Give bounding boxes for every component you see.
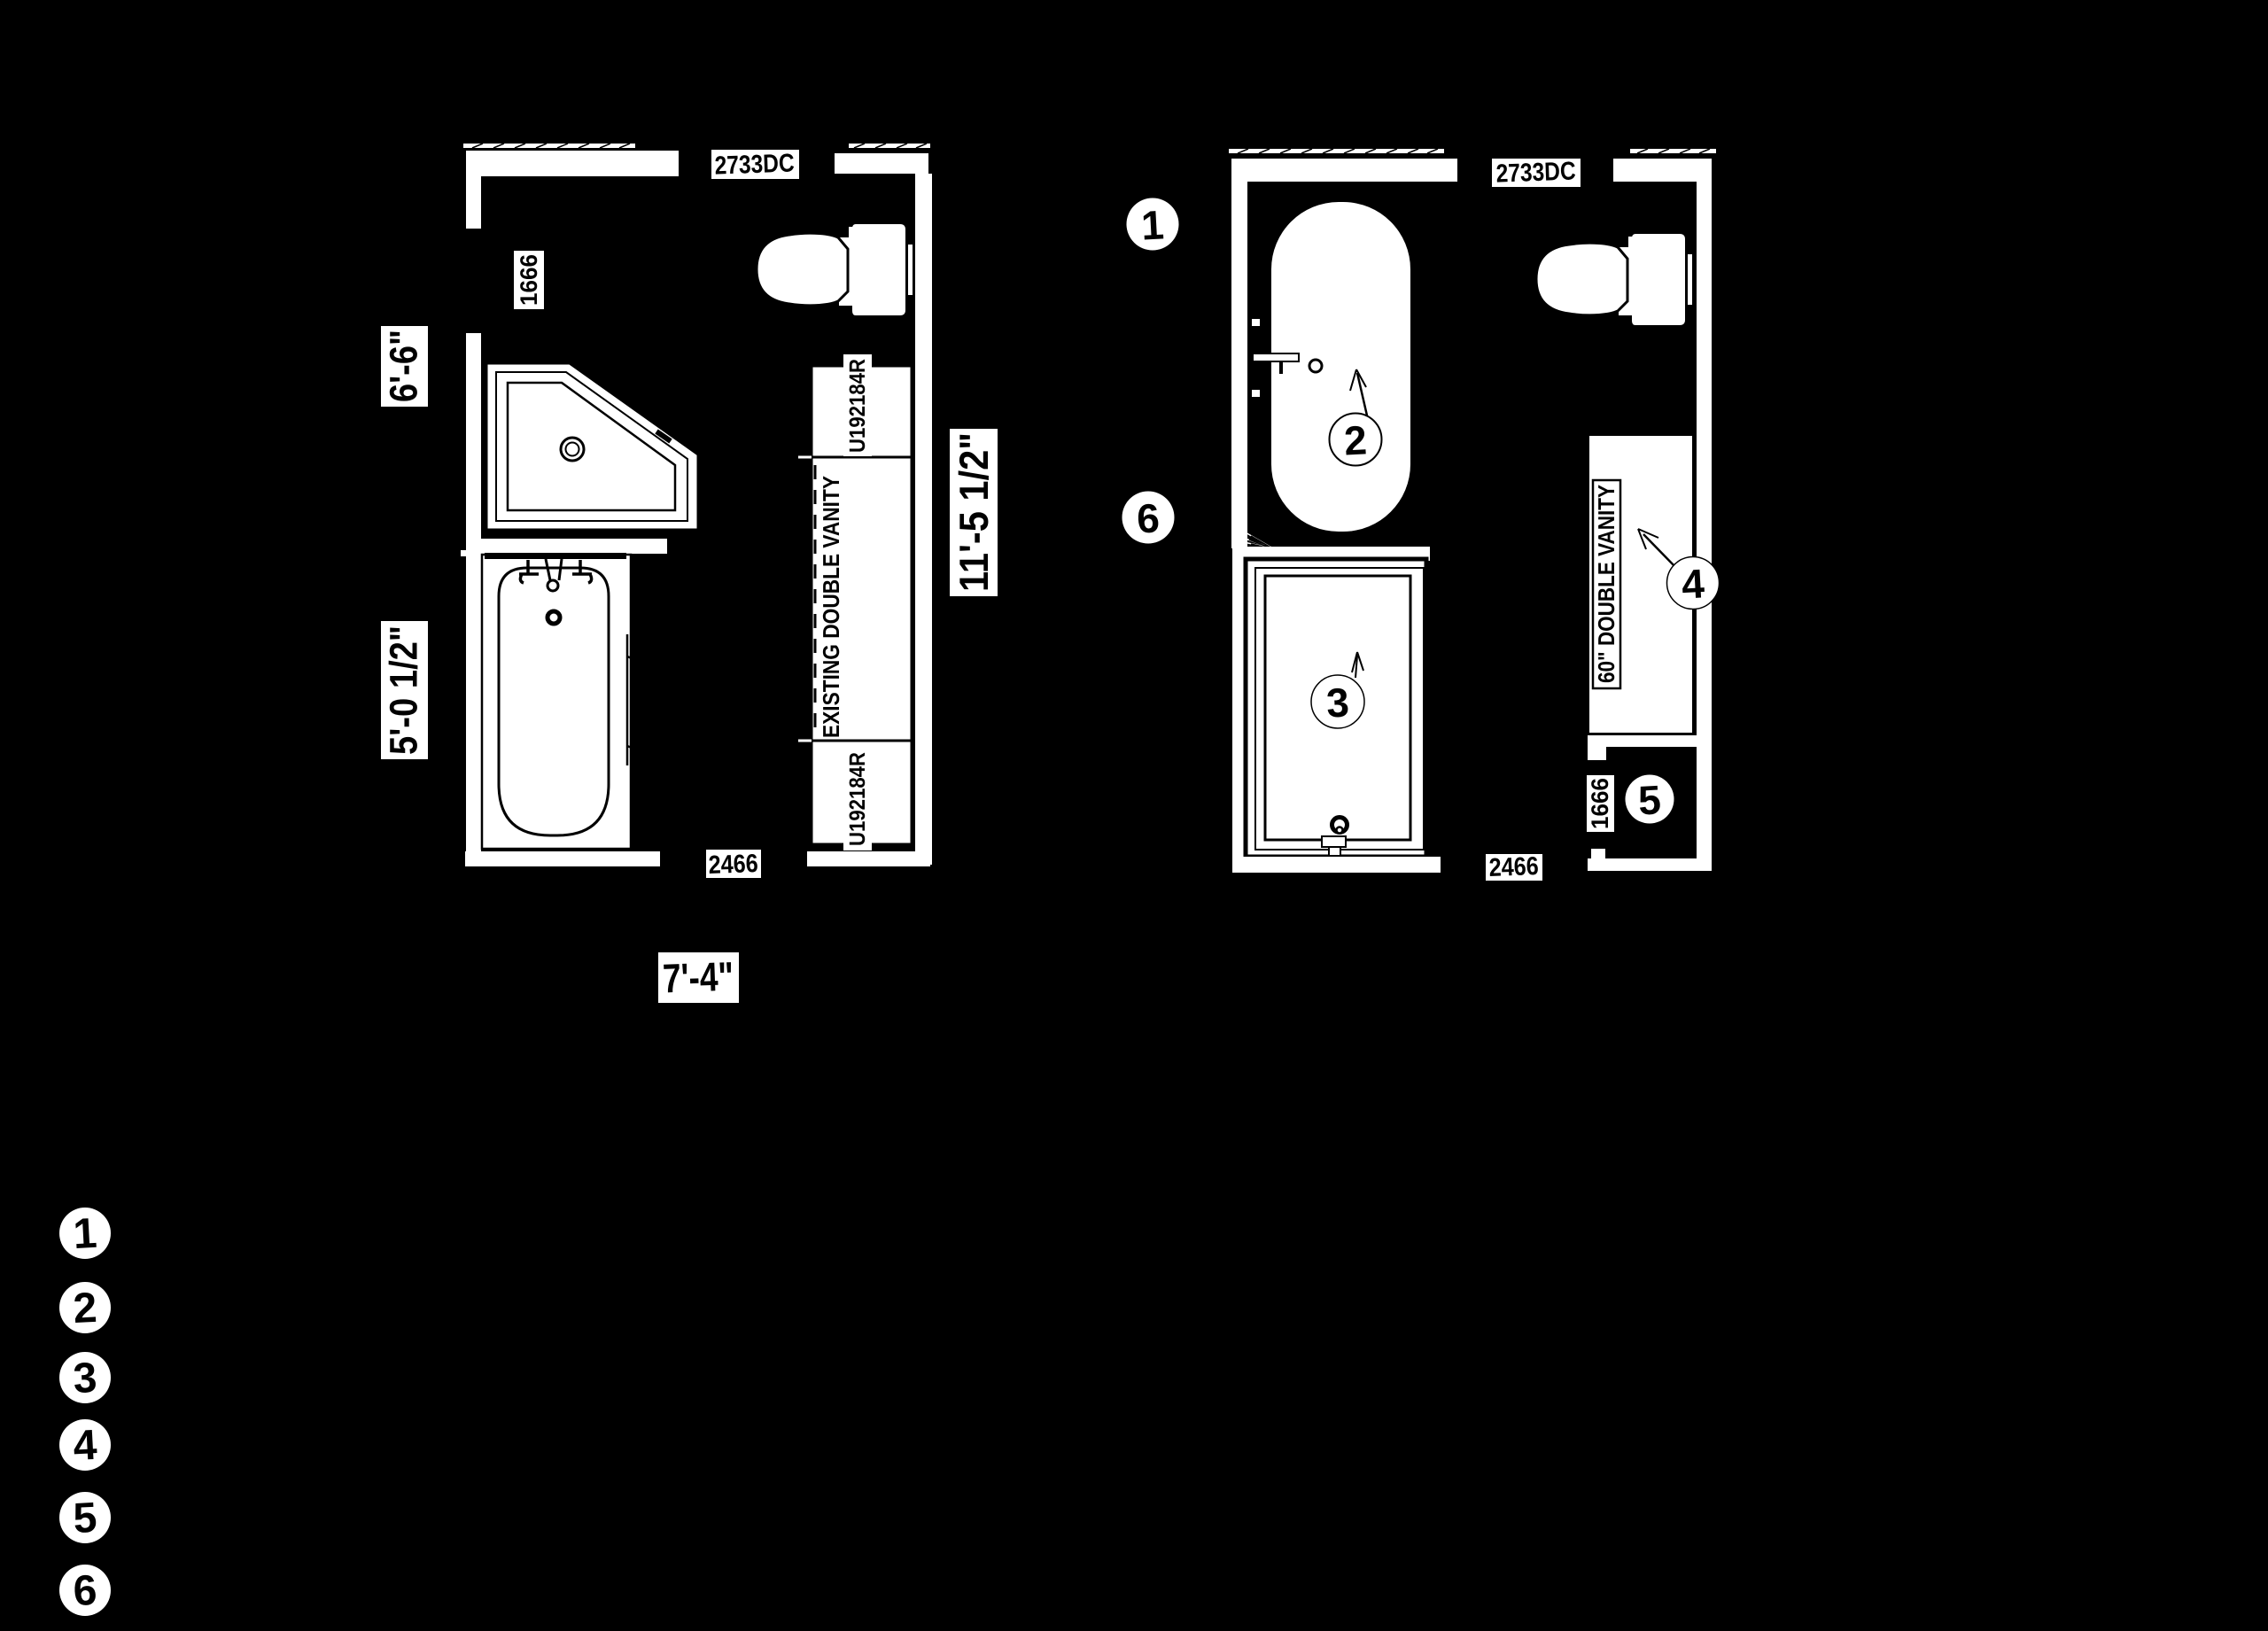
svg-text:3: 3 (1325, 679, 1350, 726)
svg-text:1: 1 (1140, 201, 1165, 248)
svg-text:EXISTING DOUBLE VANITY: EXISTING DOUBLE VANITY (818, 476, 844, 738)
svg-text:6'-6": 6'-6" (383, 330, 426, 402)
svg-text:1666: 1666 (516, 254, 542, 306)
svg-text:6: 6 (72, 1567, 97, 1615)
svg-text:11'-5 1/2": 11'-5 1/2" (951, 432, 997, 592)
svg-text:2733DC: 2733DC (1495, 157, 1576, 188)
svg-text:2733DC: 2733DC (714, 149, 795, 180)
svg-text:1: 1 (72, 1210, 97, 1258)
svg-text:4: 4 (72, 1422, 98, 1470)
svg-text:5: 5 (72, 1495, 97, 1542)
svg-text:U192184R: U192184R (845, 752, 870, 846)
svg-text:3: 3 (72, 1355, 97, 1402)
svg-text:U192184R: U192184R (845, 359, 870, 453)
svg-text:2: 2 (1343, 416, 1368, 463)
svg-text:7'-4": 7'-4" (662, 953, 734, 1002)
svg-text:5'-0 1/2": 5'-0 1/2" (383, 625, 426, 755)
svg-text:2466: 2466 (708, 850, 758, 880)
svg-text:5: 5 (1637, 776, 1662, 823)
svg-text:2466: 2466 (1488, 852, 1539, 882)
svg-text:2: 2 (72, 1285, 97, 1332)
svg-text:6: 6 (1136, 494, 1161, 541)
svg-text:60" DOUBLE VANITY: 60" DOUBLE VANITY (1593, 485, 1619, 683)
svg-text:4: 4 (1681, 560, 1706, 607)
svg-text:1666: 1666 (1587, 778, 1613, 829)
